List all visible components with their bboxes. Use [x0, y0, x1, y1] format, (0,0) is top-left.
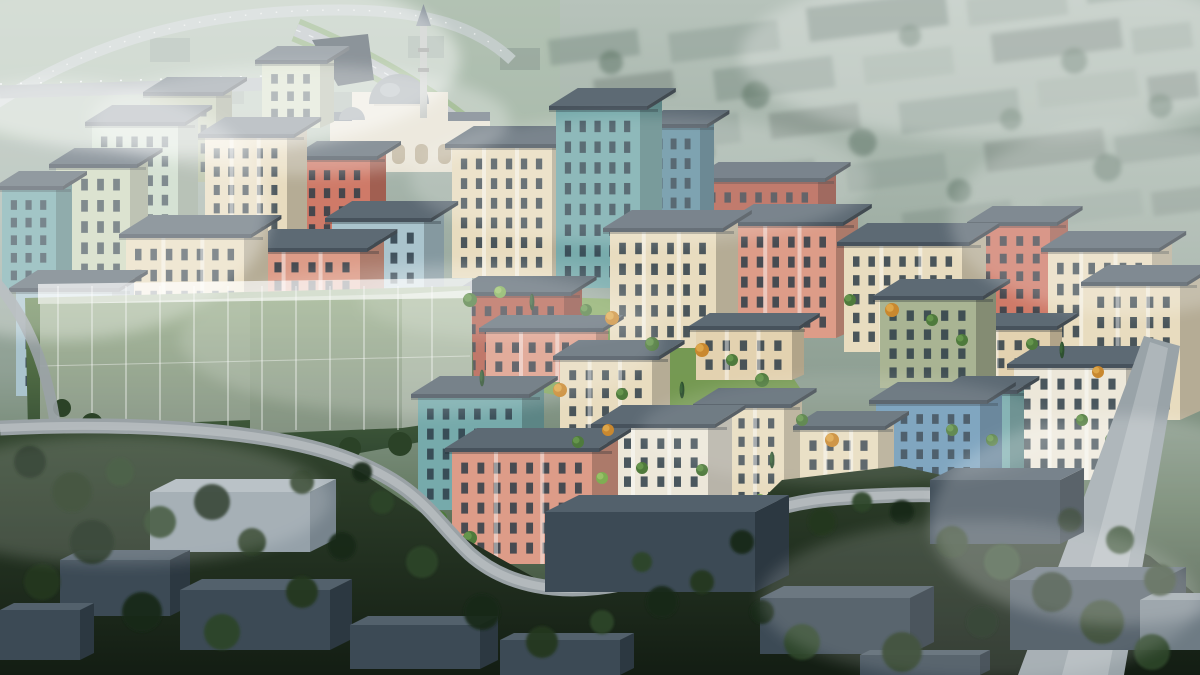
window — [705, 359, 712, 369]
window — [930, 256, 936, 266]
window — [477, 523, 484, 534]
window — [1108, 399, 1115, 410]
window — [819, 297, 826, 308]
foreground-tree — [690, 570, 714, 594]
window — [641, 476, 648, 486]
apartment-building — [873, 279, 1010, 388]
window — [594, 245, 600, 256]
window — [804, 297, 811, 308]
window — [624, 438, 631, 448]
window — [657, 476, 664, 486]
window — [741, 277, 748, 288]
window — [1163, 317, 1170, 328]
window — [757, 277, 764, 288]
window — [683, 326, 690, 337]
window — [741, 297, 748, 308]
roof — [689, 313, 820, 326]
window — [1040, 379, 1047, 390]
window — [941, 329, 948, 339]
foreground-tree — [464, 594, 500, 630]
window — [657, 457, 664, 467]
window — [407, 233, 414, 244]
window — [1057, 399, 1064, 410]
window — [1015, 340, 1022, 350]
window — [757, 257, 764, 268]
fog-patch — [90, 65, 510, 175]
window — [757, 297, 764, 308]
window — [667, 264, 674, 275]
massing-block — [0, 603, 94, 660]
window — [868, 332, 874, 342]
window — [477, 503, 484, 514]
window — [354, 188, 360, 198]
window — [559, 463, 566, 474]
window — [308, 262, 315, 272]
window — [476, 237, 482, 248]
window — [309, 188, 315, 198]
window — [1097, 317, 1104, 328]
massing-block — [500, 633, 634, 675]
window — [941, 348, 948, 358]
window — [853, 332, 859, 342]
window — [1074, 399, 1081, 410]
window — [924, 367, 931, 377]
window — [407, 253, 414, 264]
window — [635, 388, 642, 398]
foreground-tree — [24, 564, 60, 600]
window — [274, 262, 281, 272]
window — [740, 359, 747, 369]
window — [788, 277, 795, 288]
window — [699, 243, 706, 254]
window — [427, 449, 434, 460]
architectural-rendering-image — [0, 0, 1200, 675]
foreground-tree — [204, 614, 240, 650]
window — [853, 313, 859, 323]
window — [477, 483, 484, 494]
window — [575, 463, 582, 474]
window — [461, 237, 467, 248]
screenshot-root — [0, 0, 1200, 675]
window — [907, 367, 914, 377]
window — [477, 463, 484, 474]
window — [271, 185, 277, 195]
roof-fascia — [689, 326, 799, 330]
window — [526, 503, 533, 514]
window — [526, 543, 533, 554]
window — [309, 206, 315, 216]
window — [1000, 289, 1007, 299]
window — [667, 326, 674, 337]
window — [505, 409, 512, 420]
foreground-tree — [590, 610, 614, 634]
window — [946, 256, 952, 266]
window — [575, 483, 582, 494]
window — [510, 483, 517, 494]
window — [899, 256, 905, 266]
window — [674, 476, 681, 486]
window — [526, 463, 533, 474]
window — [510, 463, 517, 474]
bush — [388, 432, 412, 456]
window — [699, 284, 706, 295]
window — [868, 256, 874, 266]
foreground-tree — [122, 592, 162, 632]
window — [271, 203, 277, 213]
window — [1091, 399, 1098, 410]
window — [774, 340, 781, 350]
foreground-tree — [730, 530, 754, 554]
window — [868, 275, 874, 285]
window — [889, 348, 896, 358]
window — [324, 188, 330, 198]
window — [804, 277, 811, 288]
window — [819, 317, 826, 328]
window — [506, 237, 512, 248]
foreground-tree — [632, 552, 652, 572]
window — [521, 237, 527, 248]
window — [291, 262, 298, 272]
foreground-tree — [286, 576, 318, 608]
window — [819, 277, 826, 288]
window — [683, 284, 690, 295]
window — [324, 206, 330, 216]
roof-fascia — [445, 448, 599, 452]
window — [569, 406, 576, 416]
foreground-tree — [328, 532, 356, 560]
window — [774, 359, 781, 369]
window — [884, 275, 890, 285]
foreground-tree — [852, 492, 872, 512]
roof-fascia — [325, 218, 431, 222]
window — [1074, 379, 1081, 390]
window — [1073, 326, 1080, 338]
window — [565, 245, 571, 256]
window — [1057, 379, 1064, 390]
window — [772, 277, 779, 288]
window — [699, 305, 706, 316]
fog-patch — [640, 375, 1060, 485]
window — [461, 503, 468, 514]
window — [772, 237, 779, 248]
window — [757, 237, 764, 248]
roof-fascia — [1007, 364, 1133, 368]
window — [339, 188, 345, 198]
window — [804, 237, 811, 248]
window — [683, 305, 690, 316]
window — [683, 264, 690, 275]
window — [510, 503, 517, 514]
roof-fascia — [837, 242, 969, 246]
window — [624, 476, 631, 486]
foreground-tree — [646, 586, 678, 618]
window — [1108, 379, 1115, 390]
roof-fascia — [873, 296, 983, 300]
window — [853, 256, 859, 266]
window — [510, 543, 517, 554]
window — [889, 329, 896, 339]
foreground-tree — [808, 508, 836, 536]
window — [580, 245, 586, 256]
window — [884, 256, 890, 266]
window — [804, 257, 811, 268]
window — [907, 310, 914, 320]
window — [699, 264, 706, 275]
window — [788, 257, 795, 268]
window — [443, 489, 450, 500]
window — [924, 348, 931, 358]
window — [559, 483, 566, 494]
window — [772, 257, 779, 268]
window — [868, 313, 874, 323]
foreground-tree — [352, 462, 372, 482]
window — [819, 257, 826, 268]
window — [924, 329, 931, 339]
window — [1091, 379, 1098, 390]
window — [907, 348, 914, 358]
window — [907, 329, 914, 339]
window — [941, 367, 948, 377]
foreground-tree — [890, 500, 914, 524]
window — [491, 237, 497, 248]
window — [772, 297, 779, 308]
foreground-tree — [370, 490, 394, 514]
foreground-tree — [526, 626, 558, 658]
window — [741, 257, 748, 268]
window — [427, 489, 434, 500]
fog-patch — [760, 520, 1200, 675]
window — [683, 243, 690, 254]
roof-fascia — [549, 106, 647, 110]
window — [853, 275, 859, 285]
window — [526, 523, 533, 534]
window — [788, 297, 795, 308]
window — [536, 237, 542, 248]
foreground-tree — [406, 546, 438, 578]
window — [1130, 317, 1137, 328]
window — [941, 310, 948, 320]
window — [443, 429, 450, 440]
window — [740, 340, 747, 350]
window — [624, 457, 631, 467]
apartment-building — [689, 313, 820, 380]
window — [390, 253, 397, 264]
window — [691, 476, 698, 486]
window — [510, 523, 517, 534]
window — [427, 469, 434, 480]
fog-patch — [360, 260, 680, 340]
window — [819, 237, 826, 248]
window — [958, 348, 965, 358]
window — [958, 310, 965, 320]
window — [443, 469, 450, 480]
window — [788, 237, 795, 248]
window — [602, 388, 609, 398]
window — [427, 429, 434, 440]
window — [461, 463, 468, 474]
window — [526, 483, 533, 494]
window — [461, 483, 468, 494]
window — [651, 264, 658, 275]
